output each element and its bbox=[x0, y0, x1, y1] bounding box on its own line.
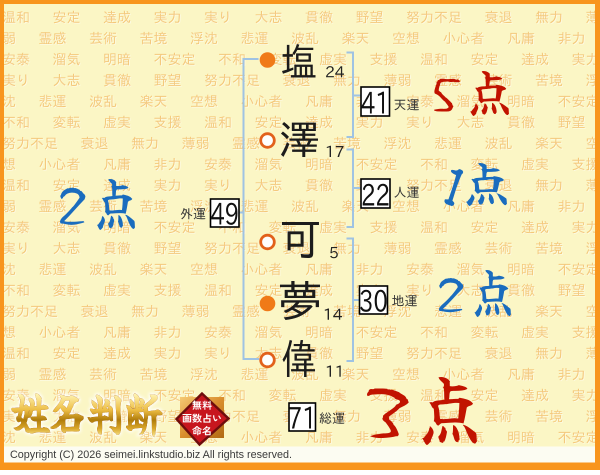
svg-text:Copyright (C) 2026 seimei.link: Copyright (C) 2026 seimei.linkstudio.biz… bbox=[10, 449, 292, 461]
